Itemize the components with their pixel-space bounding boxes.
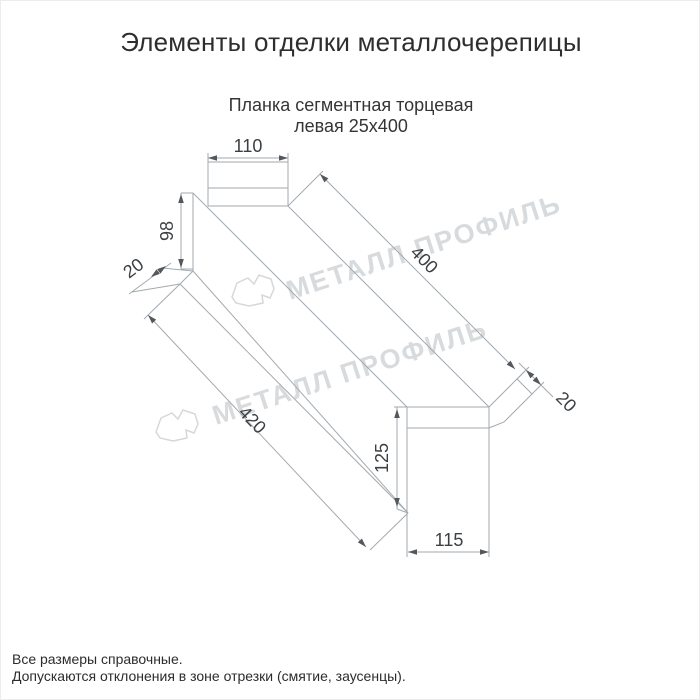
left-flange-edge: [180, 271, 193, 284]
footer-note-1: Все размеры справочные.: [12, 651, 406, 668]
dimension-length-bottom: 420: [144, 284, 408, 550]
catalog-page: Элементы отделки металлочерепицы Планка …: [0, 0, 700, 700]
arrow-icon: [208, 155, 217, 161]
arrow-icon: [480, 549, 489, 555]
arrow-icon: [178, 259, 184, 268]
arrow-icon: [178, 194, 184, 203]
dim-label-115: 115: [435, 530, 464, 550]
right-flange-edge: [489, 379, 532, 428]
dim-label-20-left: 20: [119, 254, 147, 282]
footer-notes: Все размеры справочные. Допускаются откл…: [12, 651, 406, 685]
footer-note-2: Допускаются отклонения в зоне отрезки (с…: [12, 668, 406, 685]
dimension-top-width: 110: [208, 136, 288, 162]
dimension-right-flange: 20: [517, 363, 580, 416]
dim-label-98: 98: [157, 221, 177, 241]
metall-profil-logo-icon: [232, 275, 274, 306]
dimension-bottom-width: 115: [408, 530, 489, 555]
metall-profil-logo-icon: [156, 410, 198, 441]
dim-label-20-right: 20: [552, 388, 580, 416]
dimension-left-height: 98: [157, 193, 193, 269]
dim-label-110: 110: [234, 136, 263, 156]
dimension-right-height: 125: [372, 407, 408, 513]
arrow-icon: [394, 409, 400, 418]
long-edge-flange-outer: [180, 284, 408, 513]
dim-label-125: 125: [372, 443, 392, 473]
technical-drawing: МЕТАЛЛ ПРОФИЛЬ МЕТАЛЛ ПРОФИЛЬ: [1, 1, 700, 700]
arrow-icon: [408, 549, 417, 555]
arrow-icon: [279, 155, 288, 161]
top-end-face: [208, 162, 288, 206]
